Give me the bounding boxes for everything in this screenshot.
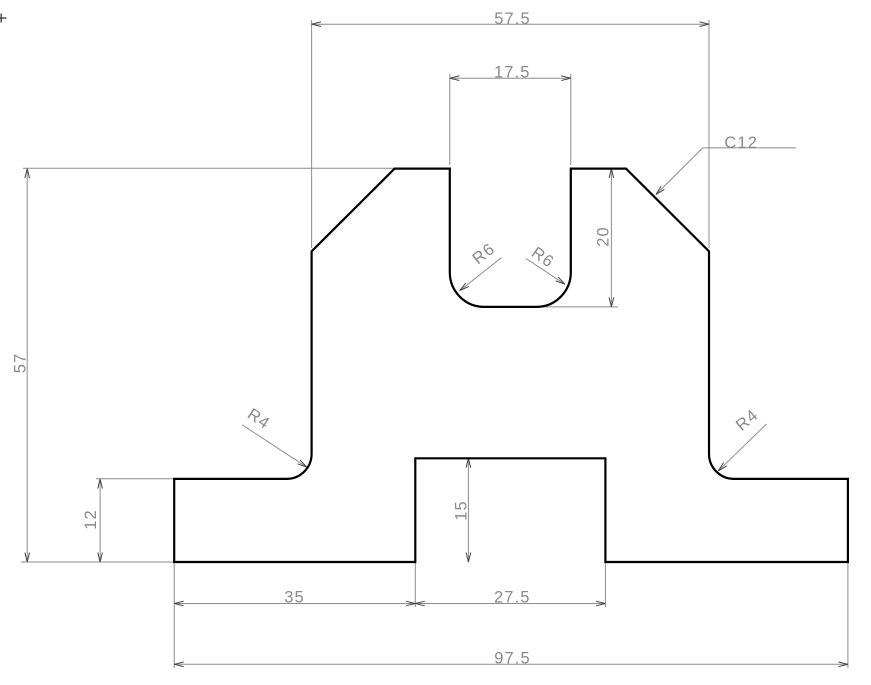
- svg-text:57.5: 57.5: [494, 10, 531, 28]
- svg-text:C12: C12: [724, 134, 758, 152]
- svg-text:97.5: 97.5: [494, 649, 531, 667]
- svg-text:12: 12: [82, 509, 100, 530]
- svg-text:57: 57: [12, 353, 30, 374]
- svg-text:20: 20: [595, 226, 613, 247]
- svg-text:17.5: 17.5: [494, 63, 531, 81]
- svg-text:27.5: 27.5: [494, 588, 531, 606]
- svg-text:15: 15: [453, 500, 471, 521]
- svg-text:35: 35: [284, 588, 305, 606]
